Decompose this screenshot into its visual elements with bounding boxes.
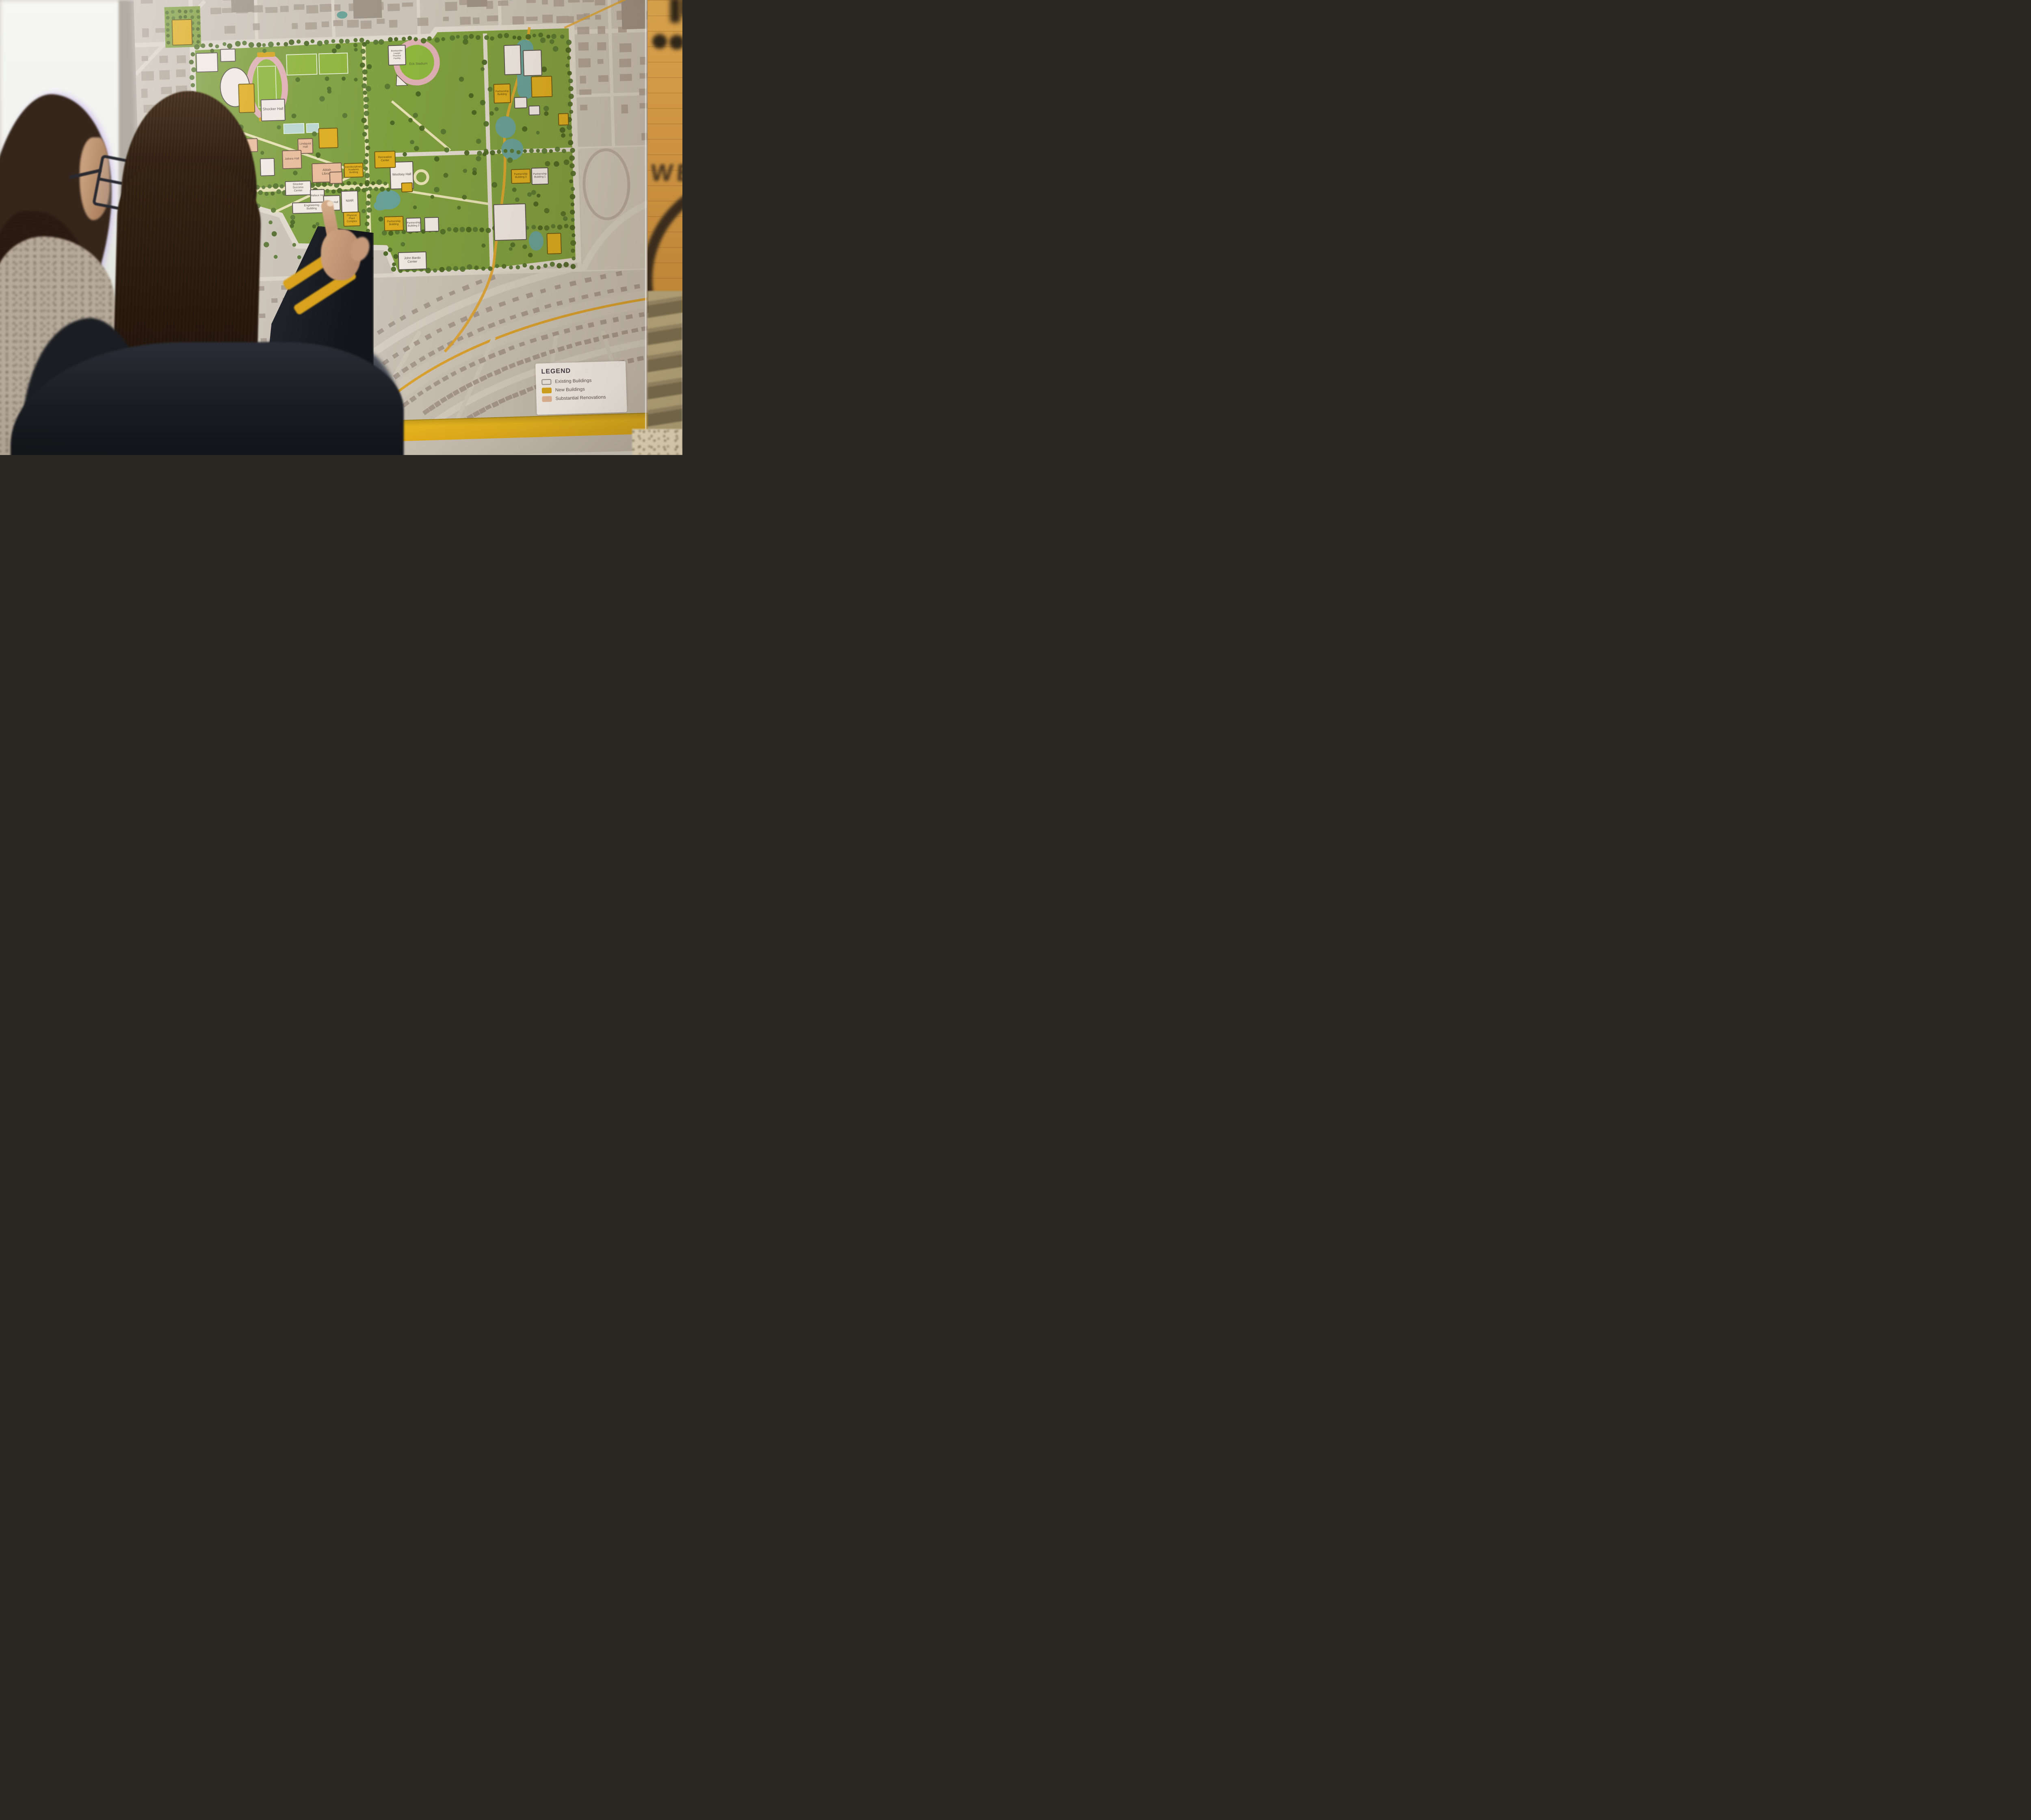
city-block: [542, 15, 553, 23]
glasses-bridge: [98, 178, 122, 185]
house: [639, 312, 645, 317]
city-block: [141, 0, 153, 4]
city-block: [159, 56, 168, 63]
city-block: [321, 21, 329, 27]
map-building-label: Jabara Hall: [285, 157, 299, 160]
city-block: [498, 0, 509, 6]
legend-item-existing: Existing Buildings: [541, 377, 620, 385]
map-building: [547, 233, 561, 254]
map-building: [196, 53, 218, 72]
city-block: [320, 4, 331, 12]
city-block: [619, 58, 631, 67]
city-block: [580, 76, 586, 84]
map-building-label: PartnershipBuilding 2: [407, 221, 420, 227]
wall-sign-text: WE: [650, 159, 682, 186]
wood-panel-wall: WE: [647, 0, 682, 313]
map-building: [523, 50, 542, 76]
city-block: [598, 26, 605, 34]
legend-title: LEGEND: [541, 366, 620, 376]
legend-swatch-new: [542, 388, 552, 394]
city-block: [620, 74, 632, 81]
city-block: [306, 5, 318, 13]
city-block: [597, 42, 606, 50]
map-building: [504, 45, 521, 75]
map-building: [221, 49, 236, 62]
wall-sign-letterform: [652, 34, 667, 49]
city-block: [156, 28, 166, 33]
map-building: [559, 113, 569, 125]
city-block: [595, 15, 601, 19]
city-block: [159, 70, 170, 80]
legend-item-renovations: Substantial Renovations: [542, 394, 621, 402]
city-block: [377, 19, 385, 24]
city-block: [305, 22, 317, 30]
map-building: [330, 172, 342, 184]
pointing-hand: [314, 200, 375, 285]
practice-field: [286, 54, 317, 75]
city-block: [542, 0, 548, 4]
city-landmark-block: [621, 0, 646, 29]
city-block: [347, 19, 359, 28]
carpet-floor: [632, 429, 682, 455]
city-block: [142, 28, 149, 37]
city-block: [621, 104, 628, 113]
map-building-label: ShockerSuccessCenter: [292, 183, 304, 192]
city-block: [334, 4, 341, 11]
city-block: [526, 0, 536, 3]
map-building: [238, 84, 255, 113]
city-block: [578, 58, 591, 67]
photo-scene: WE: [0, 0, 682, 455]
wall-sign-letterform: [669, 35, 682, 50]
legend-swatch-existing: [541, 379, 551, 385]
city-block: [582, 0, 594, 2]
city-block: [445, 2, 457, 11]
city-block: [460, 17, 471, 25]
city-block: [487, 15, 498, 22]
map-field-label: Eck Stadium: [409, 62, 427, 66]
house: [259, 314, 265, 318]
wall-sign-letterform: [681, 0, 682, 16]
city-block: [210, 8, 221, 14]
city-block: [556, 16, 569, 24]
map-building: [514, 97, 527, 108]
legend-box: LEGEND Existing Buildings New Buildings …: [535, 361, 627, 415]
city-block: [333, 20, 343, 26]
house: [271, 298, 277, 303]
city-block: [222, 8, 232, 13]
city-block: [577, 27, 589, 35]
field-labels: Eck Stadium: [409, 62, 427, 66]
city-block: [389, 20, 398, 28]
city-block: [361, 20, 372, 29]
city-block: [177, 55, 186, 63]
tennis-courts: [284, 123, 304, 134]
map-building-label: PartnershipBuilding 3: [514, 173, 528, 179]
city-block: [473, 17, 480, 24]
city-block: [294, 4, 305, 10]
city-block: [265, 7, 277, 13]
map-building-label: Wallace Hall: [310, 194, 325, 197]
city-block: [568, 0, 580, 3]
city-landmark-block: [467, 0, 487, 7]
city-block: [443, 17, 449, 21]
city-block: [595, 0, 605, 6]
practice-field: [319, 53, 348, 74]
city-block: [417, 17, 429, 26]
city-block: [598, 75, 608, 82]
city-block: [580, 105, 587, 110]
map-building: [494, 204, 526, 240]
map-building: [319, 128, 338, 148]
city-block: [579, 89, 591, 95]
city-block: [141, 71, 154, 81]
city-block: [526, 17, 537, 21]
city-block: [512, 16, 524, 25]
fingernail: [327, 201, 333, 206]
city-block: [554, 0, 564, 6]
map-building-label: Shocker Hall: [262, 106, 283, 111]
map-building: [260, 158, 275, 176]
map-building: [529, 106, 540, 115]
city-block: [141, 89, 148, 98]
city-block: [578, 42, 589, 51]
city-landmark-block: [231, 0, 254, 13]
wall-sign-letterform: [670, 0, 680, 23]
city-landmark-block: [353, 0, 382, 19]
map-building-label: PartnershipBuilding 1: [533, 172, 547, 178]
map-building: [531, 76, 552, 97]
city-block: [253, 23, 260, 30]
city-block: [161, 87, 172, 94]
city-block: [280, 6, 289, 12]
map-building: [424, 217, 439, 232]
legend-swatch-renovation: [542, 396, 552, 402]
tennis-courts: [306, 123, 319, 133]
city-block: [292, 23, 298, 29]
city-block: [598, 59, 604, 64]
map-building: [172, 19, 192, 45]
city-block: [619, 43, 632, 52]
city-block: [142, 56, 148, 61]
legend-item-new: New Buildings: [542, 386, 621, 394]
city-block: [388, 4, 400, 11]
map-building-label: Woolsey Hall: [392, 172, 411, 176]
city-block: [224, 26, 235, 34]
map-building: [402, 183, 413, 192]
city-block: [402, 2, 413, 7]
city-block: [176, 69, 186, 77]
